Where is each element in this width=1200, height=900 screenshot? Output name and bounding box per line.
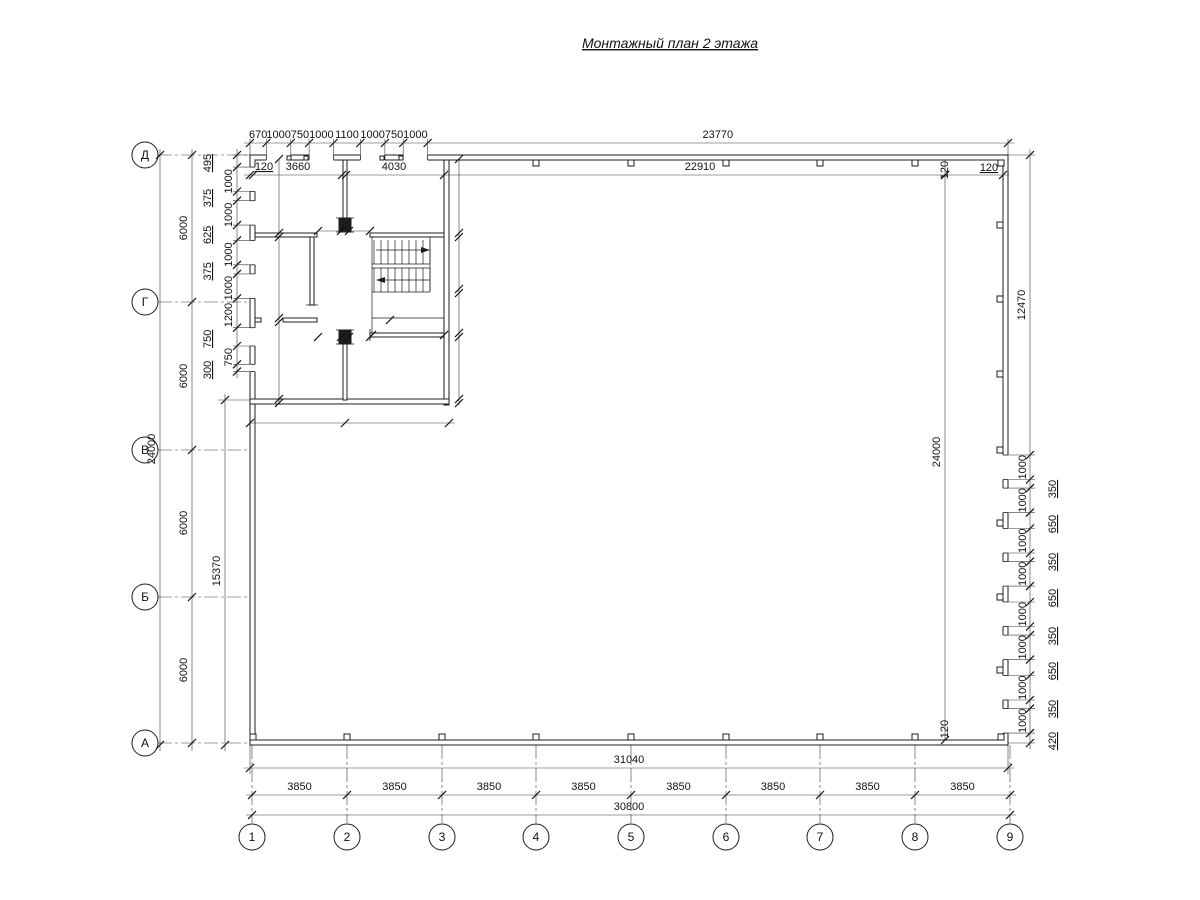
- dim-label: 3660: [286, 161, 310, 173]
- dim-label: 1000: [360, 129, 384, 141]
- steel-column: [339, 218, 351, 232]
- dim-label: 750: [223, 348, 235, 366]
- dim-label: 1100: [335, 129, 359, 141]
- outer-wall-inner: [255, 160, 1003, 740]
- grid-row-label: Г: [142, 295, 149, 309]
- column-marker: [439, 734, 445, 740]
- wall: [255, 318, 261, 322]
- column-marker: [380, 156, 384, 160]
- column-marker: [344, 734, 350, 740]
- dim-label: 3850: [382, 781, 406, 793]
- dim-label: 625: [202, 226, 214, 244]
- wall: [343, 160, 347, 218]
- window-opening: [309, 154, 334, 161]
- window-opening: [1002, 635, 1009, 660]
- window-opening: [249, 274, 256, 299]
- wall: [370, 333, 444, 337]
- grid-col-label: 4: [533, 830, 540, 844]
- window-opening: [249, 201, 256, 225]
- window-opening: [249, 328, 256, 346]
- dim-label: 375: [202, 189, 214, 207]
- column-marker: [250, 734, 256, 740]
- window-opening: [249, 364, 256, 371]
- dim-label: 1000: [1017, 602, 1029, 626]
- dim-label: 750: [385, 129, 403, 141]
- grid-row-label: А: [141, 736, 149, 750]
- dim-label: 350: [1047, 553, 1059, 571]
- dim-label: 1000: [223, 203, 235, 227]
- dim-label: 650: [1047, 662, 1059, 680]
- column-marker: [817, 160, 823, 166]
- dim-label: 350: [1047, 480, 1059, 498]
- dim-label: 1000: [1017, 488, 1029, 512]
- dim-label: 24000: [146, 434, 158, 465]
- window-opening: [1002, 676, 1009, 701]
- dim-label: 12470: [1016, 290, 1028, 321]
- window-opening: [1002, 602, 1009, 627]
- column-marker: [628, 160, 634, 166]
- wall: [283, 318, 317, 322]
- dim-label: 1000: [266, 129, 290, 141]
- dim-label: 420: [1047, 732, 1059, 750]
- column-marker: [287, 156, 291, 160]
- dim-label: 300: [202, 361, 214, 379]
- column-marker: [997, 371, 1003, 377]
- column-marker: [997, 296, 1003, 302]
- column-marker: [997, 447, 1003, 453]
- drawing-sheet: Монтажный план 2 этажа ДГВБА123456789670…: [0, 0, 1200, 900]
- dim-label: 6000: [178, 364, 190, 388]
- column-marker: [533, 160, 539, 166]
- dim-label: 30800: [614, 801, 645, 813]
- grid-col-label: 2: [344, 830, 351, 844]
- dim-label: 1000: [1017, 675, 1029, 699]
- dim-label: 1000: [1017, 528, 1029, 552]
- window-opening: [1002, 562, 1009, 587]
- wall: [370, 233, 444, 237]
- dim-label: 1000: [223, 276, 235, 300]
- dim-label: 3850: [855, 781, 879, 793]
- dim-label: 6000: [178, 511, 190, 535]
- floor-plan-svg: Монтажный план 2 этажа ДГВБА123456789670…: [0, 0, 1200, 900]
- dim-label: 1000: [223, 242, 235, 266]
- column-marker: [997, 594, 1003, 600]
- dim-label: 15370: [211, 556, 223, 587]
- dim-label: 1000: [1017, 709, 1029, 733]
- grid-col-label: 9: [1007, 830, 1014, 844]
- column-marker: [399, 156, 403, 160]
- column-marker: [533, 734, 539, 740]
- column-marker: [997, 667, 1003, 673]
- dim-label: 22910: [685, 161, 716, 173]
- wall: [343, 344, 347, 400]
- window-opening: [1002, 488, 1009, 512]
- column-marker: [912, 734, 918, 740]
- grid-col-label: 3: [439, 830, 446, 844]
- grid-col-label: 8: [912, 830, 919, 844]
- dim-label: 3850: [761, 781, 785, 793]
- dim-label: 23770: [703, 129, 734, 141]
- column-marker: [997, 222, 1003, 228]
- column-marker: [912, 160, 918, 166]
- grid-col-label: 1: [249, 830, 256, 844]
- grid-col-label: 5: [628, 830, 635, 844]
- column-marker: [628, 734, 634, 740]
- dim-label: 120: [255, 161, 273, 173]
- dim-label: 1000: [1017, 635, 1029, 659]
- window-opening: [1002, 455, 1009, 480]
- column-marker: [723, 160, 729, 166]
- dim-label: 750: [291, 129, 309, 141]
- dim-label: 3850: [571, 781, 595, 793]
- wall: [310, 237, 314, 305]
- wall: [444, 160, 449, 405]
- dim-label: 1000: [1017, 455, 1029, 479]
- dim-label: 1000: [223, 169, 235, 193]
- grid-col-label: 6: [723, 830, 730, 844]
- dim-label: 1000: [309, 129, 333, 141]
- wall: [255, 233, 317, 237]
- column-marker: [998, 734, 1004, 740]
- dim-label: 1000: [403, 129, 427, 141]
- dim-label: 6000: [178, 216, 190, 240]
- window-opening: [403, 154, 427, 161]
- grid-col-label: 7: [817, 830, 824, 844]
- dim-label: 1000: [1017, 562, 1029, 586]
- window-opening: [249, 240, 256, 264]
- dim-label: 3850: [287, 781, 311, 793]
- column-marker: [817, 734, 823, 740]
- grid-row-label: Д: [141, 148, 149, 162]
- dim-label: 650: [1047, 589, 1059, 607]
- dim-label: 350: [1047, 627, 1059, 645]
- dim-label: 6000: [178, 658, 190, 682]
- grid-row-label: Б: [141, 590, 149, 604]
- dim-label: 495: [202, 154, 214, 172]
- dim-label: 375: [202, 262, 214, 280]
- dim-label: 3850: [477, 781, 501, 793]
- dim-label: 120: [980, 162, 998, 174]
- dim-label: 3850: [666, 781, 690, 793]
- dim-label: 31040: [614, 754, 645, 766]
- dim-label: 350: [1047, 700, 1059, 718]
- dim-label: 1200: [223, 303, 235, 327]
- dim-label: 3850: [950, 781, 974, 793]
- dim-label: 650: [1047, 515, 1059, 533]
- window-opening: [1002, 709, 1009, 734]
- column-marker: [304, 156, 308, 160]
- dim-label: 24000: [931, 437, 943, 468]
- dim-label: 4030: [382, 161, 406, 173]
- dim-label: 670: [249, 129, 267, 141]
- column-marker: [723, 734, 729, 740]
- window-opening: [1002, 529, 1009, 554]
- column-marker: [997, 520, 1003, 526]
- drawing-title: Монтажный план 2 этажа: [582, 35, 758, 51]
- dim-label: 750: [202, 330, 214, 348]
- column-marker: [998, 160, 1004, 166]
- dim-label: 120: [939, 720, 951, 738]
